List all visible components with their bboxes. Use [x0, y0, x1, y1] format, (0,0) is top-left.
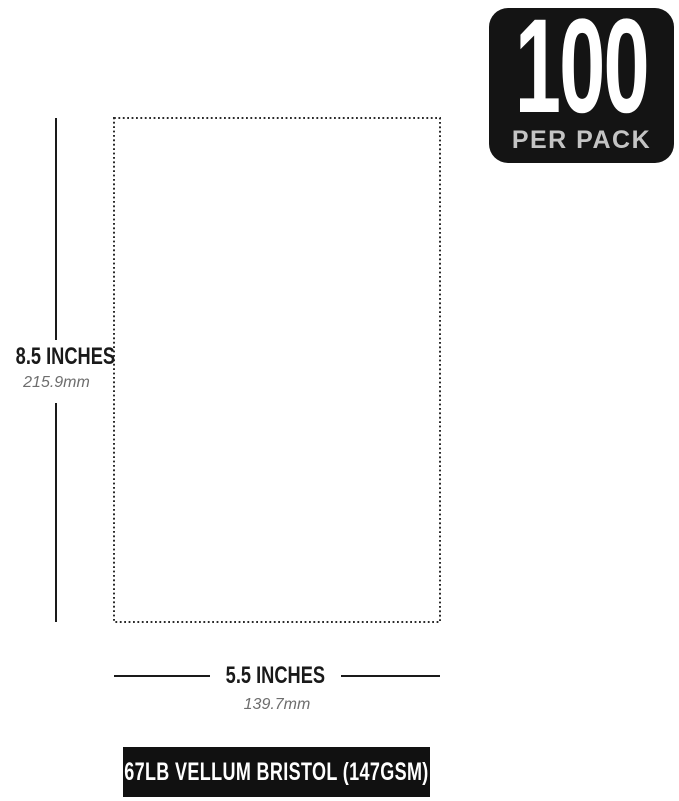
badge-count-wrap: 100 — [474, 17, 679, 117]
width-dimension: 5.5 INCHES — [114, 659, 440, 693]
height-dimension-label: 8.5 INCHES 215.9mm — [0, 344, 113, 391]
width-dimension-line-right — [341, 675, 440, 677]
height-inches-label: 8.5 INCHES — [16, 344, 115, 371]
width-metric-label: 139.7mm — [114, 696, 440, 714]
per-pack-badge: 100 PER PACK — [489, 8, 674, 163]
badge-count: 100 — [515, 0, 648, 134]
product-dimension-infographic: 100 PER PACK 8.5 INCHES 215.9mm 5.5 INCH… — [0, 0, 679, 801]
width-inches-label: 5.5 INCHES — [226, 663, 325, 690]
footer-spec-label: 67LB VELLUM BRISTOL (147GSM) — [124, 758, 428, 787]
width-dimension-line-left — [114, 675, 210, 677]
paper-outline — [112, 116, 442, 624]
height-metric-label: 215.9mm — [0, 374, 113, 392]
height-dimension-line-top — [55, 118, 57, 340]
width-metric-wrap: 139.7mm — [114, 693, 440, 714]
footer-spec-bar: 67LB VELLUM BRISTOL (147GSM) — [123, 747, 430, 797]
height-dimension-line-bottom — [55, 403, 57, 622]
